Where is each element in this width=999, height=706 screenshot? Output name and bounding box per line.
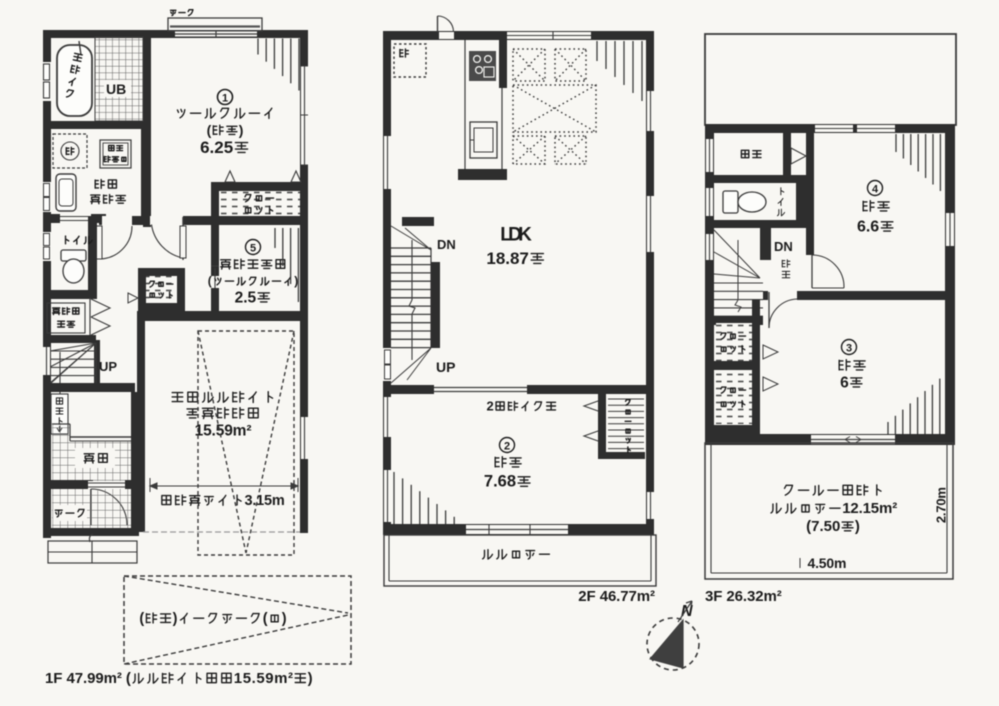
svg-text:5: 5 (250, 243, 256, 255)
svg-text:): ) (282, 611, 287, 627)
svg-text:DN: DN (774, 239, 793, 254)
svg-text:12.15m²: 12.15m² (842, 500, 897, 517)
svg-text:6.25: 6.25 (200, 138, 233, 157)
svg-text:): ) (294, 274, 298, 288)
svg-text:(7.50: (7.50 (806, 518, 840, 535)
svg-text:1F 47.99m² (: 1F 47.99m² ( (45, 670, 131, 687)
svg-text:): ) (239, 122, 244, 138)
svg-text:(: ( (207, 122, 212, 138)
svg-text:(: ( (139, 611, 144, 627)
svg-text:3F 26.32m²: 3F 26.32m² (705, 588, 782, 605)
svg-text:LDK: LDK (500, 225, 532, 246)
svg-text:(: ( (208, 274, 212, 288)
svg-text:): ) (173, 611, 178, 627)
svg-text:2.70m: 2.70m (933, 487, 948, 523)
svg-text:15.59m²: 15.59m² (195, 422, 252, 439)
svg-text:2: 2 (504, 441, 510, 453)
svg-text:15.59m²: 15.59m² (234, 670, 293, 687)
svg-text:2F 46.77m²: 2F 46.77m² (578, 588, 655, 605)
svg-text:4: 4 (872, 184, 879, 196)
svg-text:6.6: 6.6 (857, 218, 879, 235)
svg-text:6: 6 (840, 374, 849, 391)
svg-text:UP: UP (436, 359, 455, 375)
svg-text:18.87: 18.87 (486, 249, 529, 268)
svg-text:): ) (855, 518, 860, 535)
svg-text:2: 2 (487, 398, 494, 413)
svg-text:4.50m: 4.50m (808, 555, 847, 571)
svg-text:): ) (308, 670, 313, 687)
svg-text:3: 3 (846, 343, 852, 355)
svg-text:UB: UB (106, 81, 126, 97)
svg-text:2.5: 2.5 (235, 289, 257, 306)
svg-text:3.15m: 3.15m (245, 493, 285, 509)
svg-text:UP: UP (99, 359, 117, 374)
svg-text:DN: DN (437, 237, 456, 252)
svg-text:(: ( (263, 611, 268, 627)
svg-text:7.68: 7.68 (484, 473, 516, 491)
svg-text:1: 1 (222, 93, 228, 105)
